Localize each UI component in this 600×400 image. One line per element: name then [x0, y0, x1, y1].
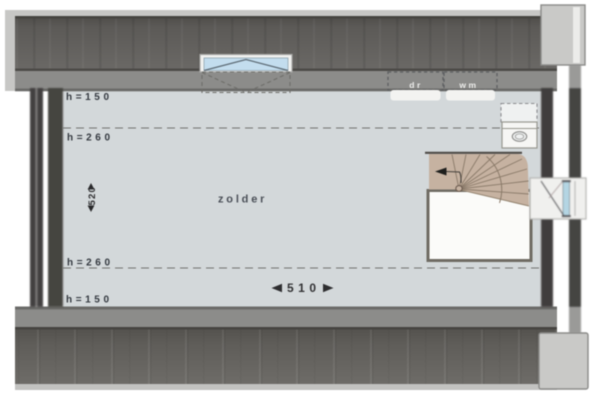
svg-text:wm: wm — [458, 80, 478, 90]
svg-text:h=150: h=150 — [66, 92, 113, 103]
svg-text:h=260: h=260 — [67, 133, 114, 144]
svg-text:h=260: h=260 — [67, 258, 114, 269]
svg-text:zolder: zolder — [218, 194, 267, 206]
svg-text:520: 520 — [87, 186, 98, 205]
svg-text:dr: dr — [409, 80, 423, 90]
svg-text:510: 510 — [287, 281, 321, 295]
svg-text:h=150: h=150 — [66, 295, 113, 306]
